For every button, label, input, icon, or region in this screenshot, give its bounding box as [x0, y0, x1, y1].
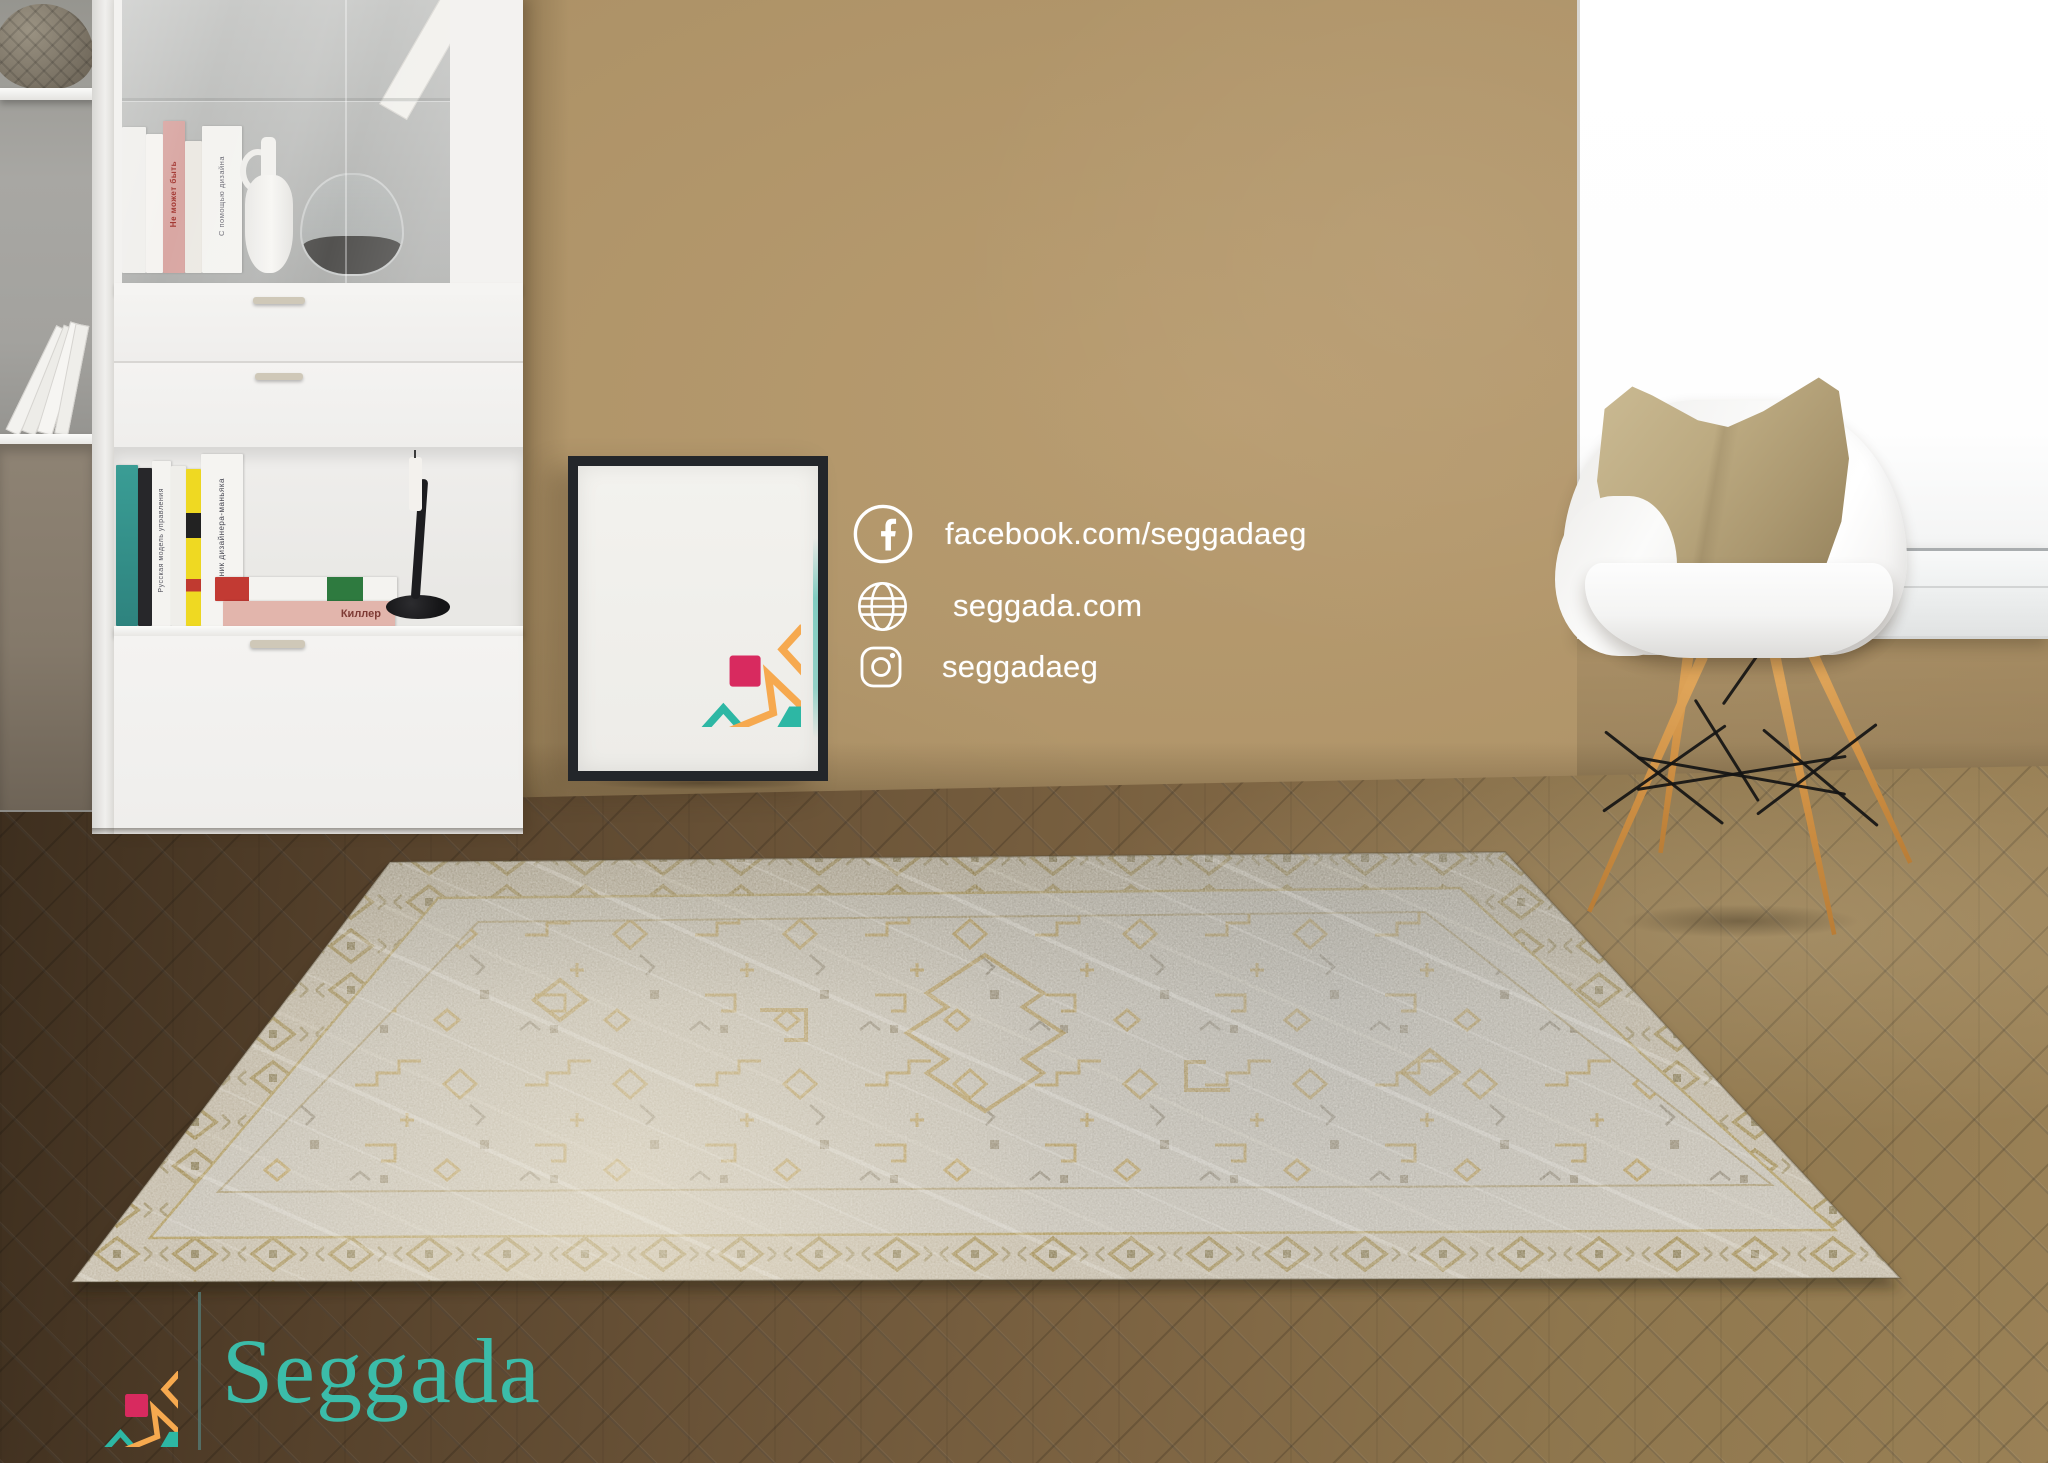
candle-wick	[414, 450, 416, 458]
brand-wordmark: Seggada	[222, 1325, 541, 1417]
social-row-facebook: facebook.com/seggadaeg	[852, 502, 1307, 566]
book-spine	[186, 469, 201, 626]
candle-holder-base	[386, 595, 450, 619]
drawer-handle	[253, 297, 305, 304]
instagram-handle: seggadaeg	[942, 649, 1098, 685]
wall-shelf-top	[0, 88, 96, 100]
instagram-icon	[858, 644, 904, 690]
frame-reflection	[813, 538, 818, 738]
facebook-icon	[852, 503, 914, 565]
social-row-website: seggada.com	[856, 579, 1142, 633]
leaning-magazines	[0, 306, 94, 438]
book-spine-label: Русская модель управления	[158, 488, 165, 599]
armchair	[1545, 358, 1925, 958]
leg-brace-wire	[1694, 699, 1760, 802]
cabinet-frame-band	[114, 283, 523, 295]
book-spine	[171, 466, 186, 626]
bookcase-side-panel	[92, 0, 114, 834]
candle	[409, 457, 422, 511]
leg-brace-wire	[1762, 728, 1879, 827]
glass-reflection	[122, 0, 450, 283]
drawer-upper	[114, 295, 523, 361]
room-scene: Не может быть С помощью дизайна Русская …	[0, 0, 2048, 1463]
book-spine: Русская модель управления	[152, 461, 171, 626]
stacked-book: Киллер	[223, 601, 395, 627]
shelf-board	[114, 626, 523, 636]
chair-leg	[1582, 653, 1711, 915]
brand-divider	[198, 1292, 201, 1450]
website-url: seggada.com	[953, 588, 1142, 624]
lower-side-panel	[0, 444, 92, 810]
seggada-logo-artwork	[596, 522, 801, 727]
framed-logo-poster	[568, 456, 828, 781]
globe-icon	[856, 580, 909, 633]
cabinet-floor-shadow	[92, 828, 523, 836]
stacked-book	[215, 577, 397, 601]
brand-lockup: Seggada	[26, 1288, 541, 1454]
drawer-bottom	[114, 636, 523, 830]
drawer-handle	[255, 373, 303, 380]
chair-leg	[1804, 647, 1918, 867]
drawer-handle	[250, 640, 305, 648]
facebook-handle: facebook.com/seggadaeg	[945, 516, 1307, 552]
book-spine	[116, 465, 138, 626]
glass-display-cabinet: Не может быть С помощью дизайна	[122, 0, 450, 283]
open-shelf: Русская модель управления Дневник дизайн…	[114, 447, 523, 629]
seggada-logo	[26, 1295, 178, 1447]
chair-seat	[1585, 563, 1893, 658]
social-row-instagram: seggadaeg	[858, 643, 1098, 690]
book-spine	[138, 468, 152, 626]
drawer-middle	[114, 363, 523, 447]
